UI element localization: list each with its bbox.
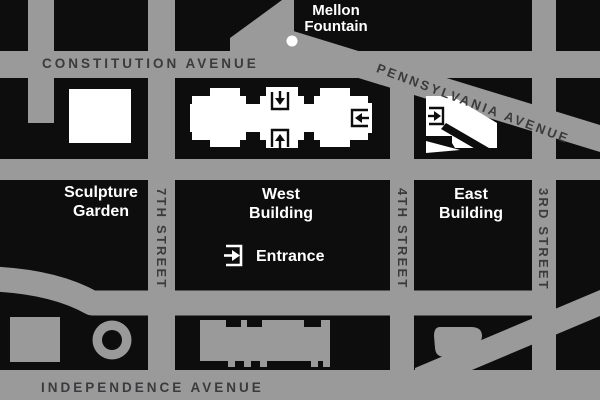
long-building-foot bbox=[228, 361, 235, 367]
mellon-fountain-line1: Mellon bbox=[312, 2, 360, 19]
fourth-street-label: 4TH STREET bbox=[395, 188, 410, 289]
entrance-label: Entrance bbox=[256, 247, 324, 266]
mellon-fountain-line2: Fountain bbox=[304, 18, 367, 35]
sculpture-garden-fountain-square bbox=[69, 89, 131, 143]
seventh-street-label: 7TH STREET bbox=[154, 188, 169, 289]
long-building-foot bbox=[260, 361, 267, 367]
gray-building-square bbox=[10, 317, 60, 362]
mellon-fountain-label: Mellon Fountain bbox=[304, 3, 367, 34]
independence-avenue-label: INDEPENDENCE AVENUE bbox=[41, 380, 264, 396]
west-building-line2: Building bbox=[249, 205, 313, 222]
sculpture-garden-line1: Sculpture bbox=[64, 184, 138, 201]
long-building-foot bbox=[244, 361, 251, 367]
ring-building-hole bbox=[102, 330, 122, 350]
road-madison-drive bbox=[0, 159, 600, 180]
east-building-line1: East bbox=[454, 186, 488, 203]
west-building-line1: West bbox=[262, 186, 300, 203]
sculpture-garden-label: Sculpture Garden bbox=[64, 183, 138, 221]
third-street-label: 3RD STREET bbox=[536, 188, 551, 291]
long-building-notch bbox=[304, 320, 321, 327]
road-jefferson-drive-curved bbox=[0, 279, 553, 303]
west-building-label: West Building bbox=[249, 185, 313, 223]
street-map: CONSTITUTION AVENUE PENNSYLVANIA AVENUE … bbox=[0, 0, 600, 400]
long-building-foot bbox=[311, 361, 318, 367]
road-junction-wedge bbox=[230, 0, 310, 51]
long-building-foot bbox=[323, 361, 330, 367]
entrance-arrow-icon bbox=[224, 246, 241, 265]
east-building-label: East Building bbox=[439, 185, 503, 223]
east-building-line2: Building bbox=[439, 205, 503, 222]
long-building-notch bbox=[247, 320, 262, 327]
long-building-notch bbox=[226, 320, 241, 327]
constitution-avenue-label: CONSTITUTION AVENUE bbox=[42, 56, 259, 72]
sculpture-garden-line2: Garden bbox=[73, 203, 129, 220]
mellon-fountain-dot bbox=[287, 36, 298, 47]
